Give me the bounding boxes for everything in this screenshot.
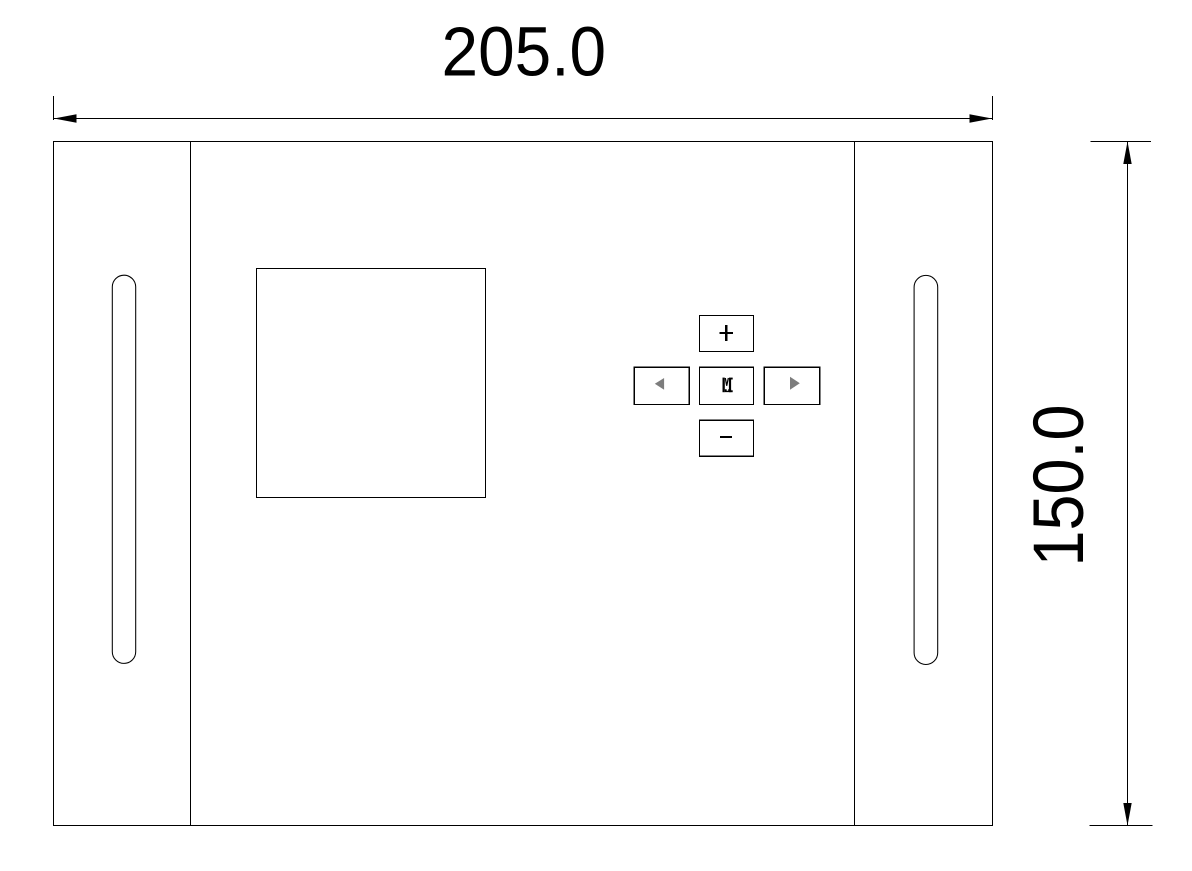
svg-text:205.0: 205.0 — [442, 12, 607, 90]
svg-text:150.0: 150.0 — [1020, 405, 1099, 567]
